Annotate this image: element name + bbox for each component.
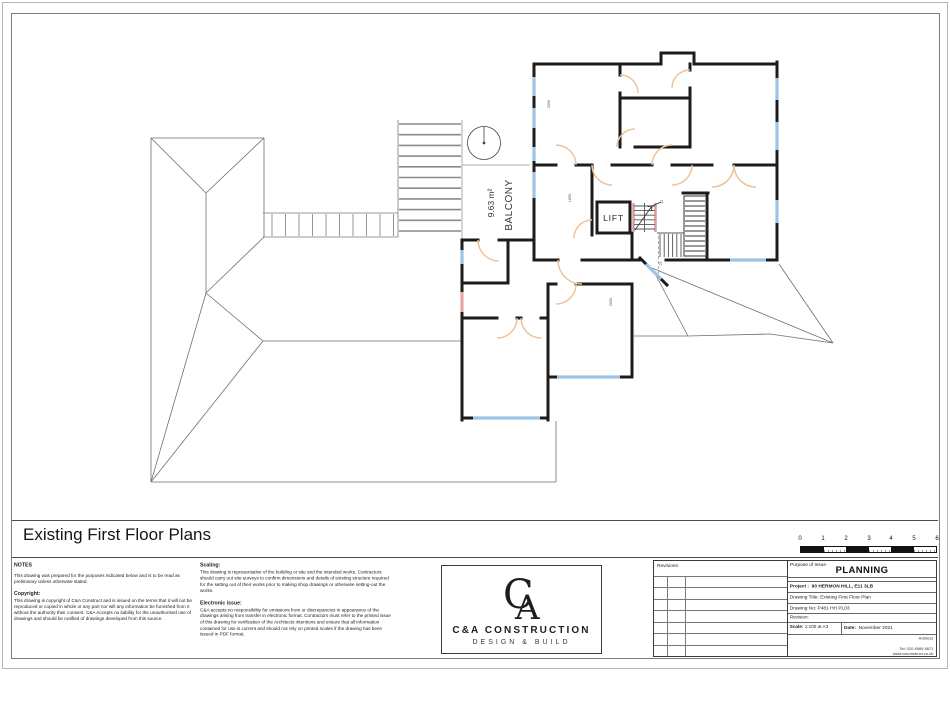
walkway-strip [263, 213, 398, 237]
bay-roof-lines [634, 264, 833, 343]
scalebar-tick: 5 [912, 536, 915, 542]
dimension-label: 1650 [568, 194, 572, 202]
revision-row [654, 610, 787, 621]
website: www.caconstruct.co.uk [892, 652, 933, 657]
copyright-paragraph: This drawing is copyright of C&A Constru… [14, 598, 198, 622]
drawing-title-label: Drawing Title: [790, 594, 819, 599]
title-divider-bottom [12, 557, 938, 558]
sheet-title: Existing First Floor Plans [23, 525, 211, 545]
svg-text:A: A [514, 588, 540, 621]
scalebar-tick: 1 [821, 536, 824, 542]
graphic-scale-bar [800, 546, 937, 553]
company-tagline: DESIGN & BUILD [472, 639, 570, 646]
title-block: Revisions: Purpose of Issue PLANNING Pro… [653, 560, 937, 657]
plan-labels: 9.63 m² BALCONY LIFT 2000 1650 2000 12 1… [486, 100, 664, 306]
title-divider-top [12, 520, 938, 521]
revisions-panel: Revisions: [654, 561, 788, 656]
notes-paragraph: This drawing was prepared for the purpos… [14, 573, 198, 585]
copyright-heading: Copyright: [14, 590, 198, 597]
scalebar-tick: 6 [935, 536, 938, 542]
dimension-label: 2000 [609, 298, 613, 306]
lift-label: LIFT [603, 213, 624, 223]
date-label: Date: [844, 625, 856, 630]
drawing-no-value: P481 HH PL03 [818, 605, 850, 610]
revision-row [654, 645, 787, 656]
door-swings [478, 70, 756, 338]
scalebar-tick: 3 [867, 536, 870, 542]
project-value: 90 HERMON HILL, E11 3LB [812, 583, 873, 588]
revision-row [654, 576, 787, 587]
scalebar-tick: 0 [798, 536, 801, 542]
address-label: Address [918, 636, 933, 641]
revision-row [654, 622, 787, 633]
notes-block: NOTES This drawing was prepared for the … [14, 562, 199, 675]
drawing-no-label: Drawing No: [790, 605, 816, 610]
electronic-issue-paragraph: C&A accepts no responsibility for omissi… [200, 607, 393, 638]
company-name: C&A CONSTRUCTION [452, 625, 590, 636]
revision-row [654, 633, 787, 644]
revision-row [654, 587, 787, 598]
revisions-label: Revisions: [657, 563, 679, 569]
purpose-of-issue-label: Purpose of Issue [790, 562, 826, 568]
title-block-right: Purpose of Issue PLANNING Project : 90 H… [788, 561, 936, 656]
revisions-table [654, 576, 787, 656]
stair-step-label: 13 [659, 262, 663, 266]
walls [462, 53, 777, 420]
revision-row [654, 599, 787, 610]
dimension-label: 2000 [547, 100, 551, 108]
north-symbol [468, 127, 501, 160]
ca-monogram-icon: C A [495, 571, 549, 621]
scale-label: Scale: [790, 624, 804, 629]
scaling-block: Scaling: This drawing is representative … [200, 562, 395, 702]
notes-heading: NOTES [14, 562, 198, 569]
scaling-paragraph: This drawing is representative of the bu… [200, 569, 393, 593]
scalebar-tick: 2 [844, 536, 847, 542]
stair-step-label: 12 [660, 200, 664, 204]
project-label: Project : [790, 583, 809, 588]
balcony-label: BALCONY [504, 179, 515, 230]
internal-stairs [634, 196, 707, 278]
electronic-issue-heading: Electronic issue: [200, 600, 393, 607]
scale-value: 1:100 at A3 [805, 624, 828, 629]
balcony-area-label: 9.63 m² [486, 188, 496, 217]
revision-label: Revision: [790, 615, 809, 620]
company-logo-box: C A C&A CONSTRUCTION DESIGN & BUILD [441, 565, 602, 654]
scalebar-tick: 4 [889, 536, 892, 542]
drawing-title-value: Existing First Floor Plan [820, 594, 871, 599]
date-value: November 2021 [859, 625, 893, 630]
scaling-heading: Scaling: [200, 562, 393, 569]
